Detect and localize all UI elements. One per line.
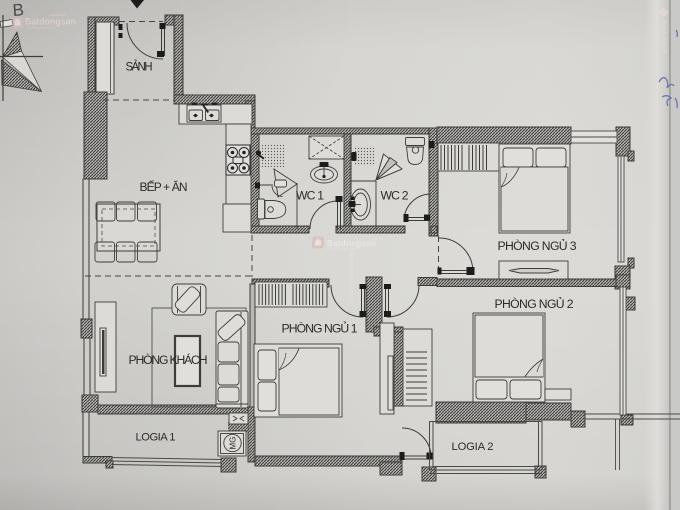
svg-text:SẢNH: SẢNH (126, 61, 153, 74)
svg-text:Batdongsan: Batdongsan (660, 20, 668, 55)
svg-text:by PropertyGuru: by PropertyGuru (329, 246, 360, 251)
svg-text:WC 1: WC 1 (296, 189, 324, 203)
svg-text:Batdongsan.com.vn: Batdongsan.com.vn (348, 251, 354, 300)
svg-text:Batdongsan: Batdongsan (25, 17, 76, 27)
svg-text:WC 2: WC 2 (381, 189, 409, 203)
svg-text:LOGIA 2: LOGIA 2 (452, 441, 494, 453)
svg-text:by PropertyGuru: by PropertyGuru (27, 26, 55, 30)
svg-text:PHÒNG NGỦ 1: PHÒNG NGỦ 1 (282, 321, 358, 336)
svg-text:PHÒNG KHÁCH: PHÒNG KHÁCH (129, 352, 208, 367)
svg-text:PHÒNG NGỦ 2: PHÒNG NGỦ 2 (495, 296, 574, 311)
svg-text:BẾP + ĂN: BẾP + ĂN (140, 179, 188, 194)
svg-text:MG: MG (228, 437, 237, 450)
svg-text:PHÒNG NGỦ 3: PHÒNG NGỦ 3 (498, 238, 577, 253)
svg-text:LOGIA 1: LOGIA 1 (136, 432, 176, 444)
svg-text:.com.vn: .com.vn (369, 237, 383, 242)
